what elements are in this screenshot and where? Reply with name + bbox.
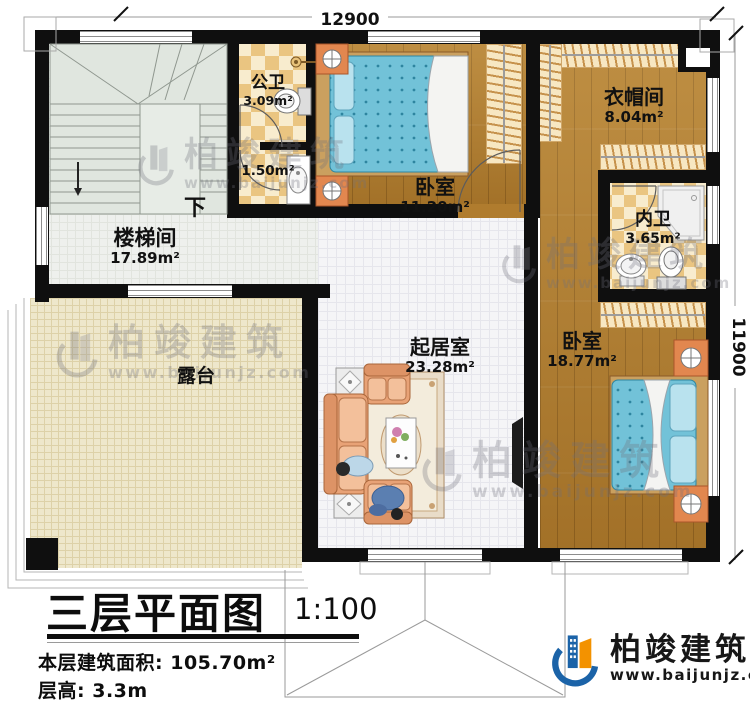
stairs [50,44,227,214]
title-underline [47,634,359,639]
room-label-living: 起居室 23.28m² [392,336,488,376]
room-area: 3.65m² [614,231,692,247]
room-area: 8.04m² [588,109,680,126]
floor-plan-page: 楼梯间 17.89m² 公卫 3.09m² 1.50m² 卧室 11.20m² … [0,0,750,707]
room-name: 内卫 [614,210,692,231]
floor-area-line: 本层建筑面积: 105.70m² [38,648,276,675]
room-label-staircase: 楼梯间 17.89m² [85,226,205,267]
room-name: 卧室 [536,330,628,353]
room-name: 露台 [160,366,232,388]
room-label-terrace: 露台 [160,366,232,388]
room-area: 18.77m² [536,353,628,370]
room-name: 公卫 [238,74,298,94]
brand-logo-icon [548,630,602,688]
room-label-public-bath: 公卫 3.09m² [238,74,298,108]
room-label-inner-bath: 内卫 3.65m² [614,210,692,247]
bed-right [610,376,708,494]
room-area: 11.20m² [390,199,480,216]
room-name: 衣帽间 [588,86,680,109]
room-label-bedroom-right: 卧室 18.77m² [536,330,628,370]
roof-outline [285,562,565,697]
dimension-width: 12900 [312,10,388,30]
sink-inner-bath [616,254,646,286]
stair-down-label: 下 [180,196,210,221]
room-area: 3.09m² [238,94,298,108]
room-name: 起居室 [392,336,488,359]
room-area: 1.50m² [238,164,298,180]
toilet-inner [657,247,686,289]
floor-area-label: 本层建筑面积: [38,652,163,674]
title-underline-thin [47,642,359,643]
plan-scale: 1:100 [294,592,378,626]
room-name: 卧室 [390,176,480,199]
coffee-table [386,418,416,468]
floor-area-value: 105.70m² [170,652,275,674]
dimension-height: 11900 [728,306,748,388]
plan-title: 三层平面图 [46,580,266,641]
floor-height-label: 层高: [38,680,85,702]
brand-name: 柏竣建筑 [610,634,750,667]
room-name: 楼梯间 [85,226,205,250]
brand-url: www.baijunjz.com [610,666,750,684]
floor-height-value: 3.3m [92,680,147,702]
room-area: 17.89m² [85,250,205,267]
room-label-bedroom-top: 卧室 11.20m² [390,176,480,216]
floor-height-line: 层高: 3.3m [38,676,148,703]
room-label-half-bath: 1.50m² [238,164,298,180]
room-area: 23.28m² [392,359,488,376]
faucet-icon [291,57,316,67]
room-label-cloakroom: 衣帽间 8.04m² [588,86,680,126]
brand-logo: 柏竣建筑 www.baijunjz.com [548,630,750,688]
tv [512,417,523,489]
